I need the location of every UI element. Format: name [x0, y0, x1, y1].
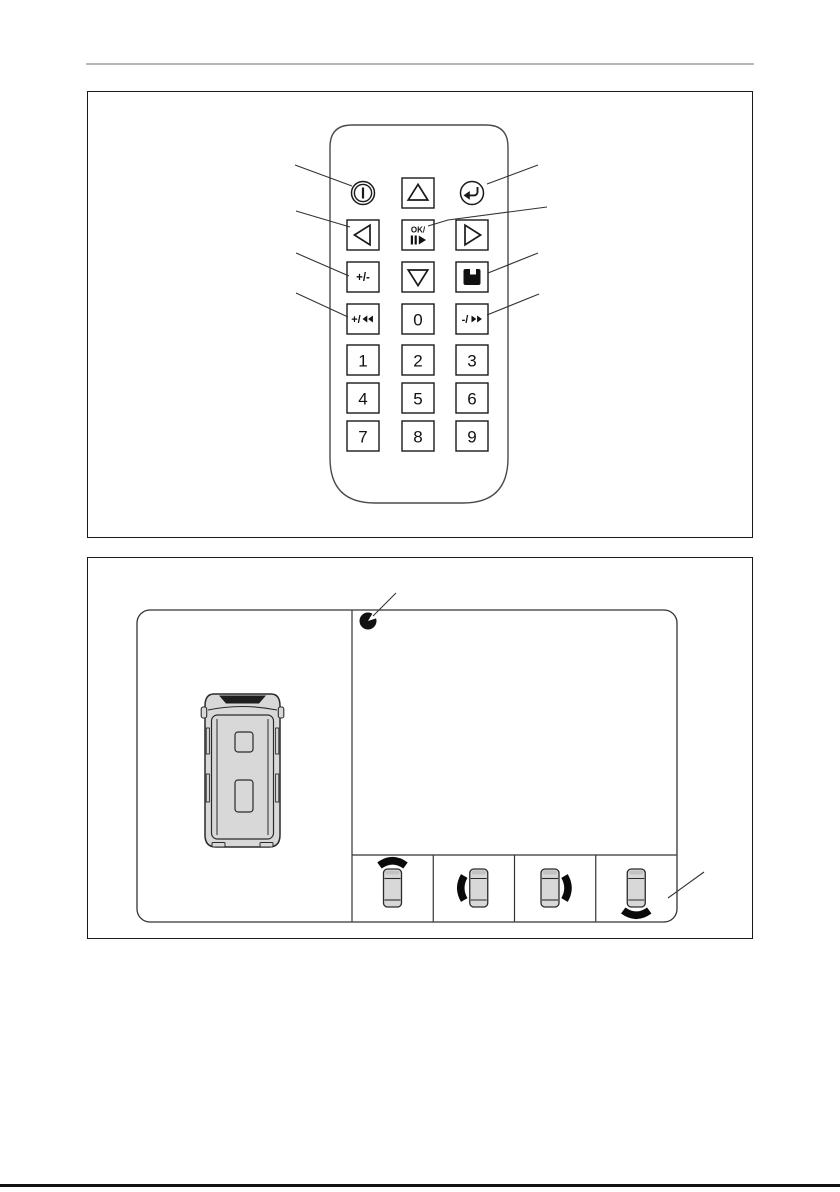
roof-hatch-rear	[235, 780, 253, 812]
right-camera-view-icon	[565, 876, 569, 900]
svg-text:5: 5	[413, 390, 422, 409]
digit-3-button: 3	[456, 345, 488, 375]
digit-2-button: 2	[402, 345, 434, 375]
svg-text:+/-: +/-	[356, 272, 370, 284]
return-arrow-icon	[461, 182, 484, 205]
svg-text:OK/: OK/	[411, 226, 426, 235]
power-button	[352, 182, 375, 205]
monitor-display-diagram	[87, 557, 753, 939]
svg-text:4: 4	[358, 390, 367, 409]
svg-text:-/: -/	[462, 314, 469, 326]
header-rule	[86, 63, 754, 65]
footer-rule	[0, 1184, 840, 1187]
cursor-right-button	[456, 220, 488, 250]
remote-control-diagram: OK/+/-+/0-/123456789	[87, 91, 753, 538]
save-button	[456, 262, 488, 292]
svg-text:+/: +/	[351, 314, 360, 326]
cursor-down-button	[402, 262, 434, 292]
digit-6-button: 6	[456, 383, 488, 413]
svg-text:7: 7	[358, 428, 367, 447]
digit-0-button: 0	[402, 304, 434, 334]
cursor-up-button	[402, 178, 434, 208]
digit-8-button: 8	[402, 421, 434, 451]
vehicle-top-view-icon	[201, 694, 284, 847]
digit-9-button: 9	[456, 421, 488, 451]
left-mirror	[201, 707, 207, 718]
svg-text:8: 8	[413, 428, 422, 447]
svg-text:6: 6	[467, 390, 476, 409]
svg-text:1: 1	[358, 352, 367, 371]
figure-remote-control: OK/+/-+/0-/123456789	[87, 91, 753, 538]
right-mirror	[278, 707, 284, 718]
windshield	[219, 696, 266, 704]
figure-monitor-display	[87, 557, 753, 939]
digit-1-button: 1	[347, 345, 379, 375]
svg-text:2: 2	[413, 352, 422, 371]
minus-forward-button: -/	[456, 304, 488, 334]
svg-text:9: 9	[467, 428, 476, 447]
digit-7-button: 7	[347, 421, 379, 451]
ok-play-pause-button: OK/	[402, 220, 434, 250]
enter-button	[461, 182, 484, 205]
cursor-left-button	[347, 220, 379, 250]
manual-page: OK/+/-+/0-/123456789	[0, 0, 840, 1192]
left-camera-view-icon	[461, 876, 465, 900]
plus-rewind-button: +/	[347, 304, 379, 334]
svg-text:0: 0	[413, 311, 422, 330]
plus-minus-button: +/-	[347, 262, 379, 292]
roof-hatch-front	[235, 732, 253, 752]
svg-text:3: 3	[467, 352, 476, 371]
digit-5-button: 5	[402, 383, 434, 413]
digit-4-button: 4	[347, 383, 379, 413]
